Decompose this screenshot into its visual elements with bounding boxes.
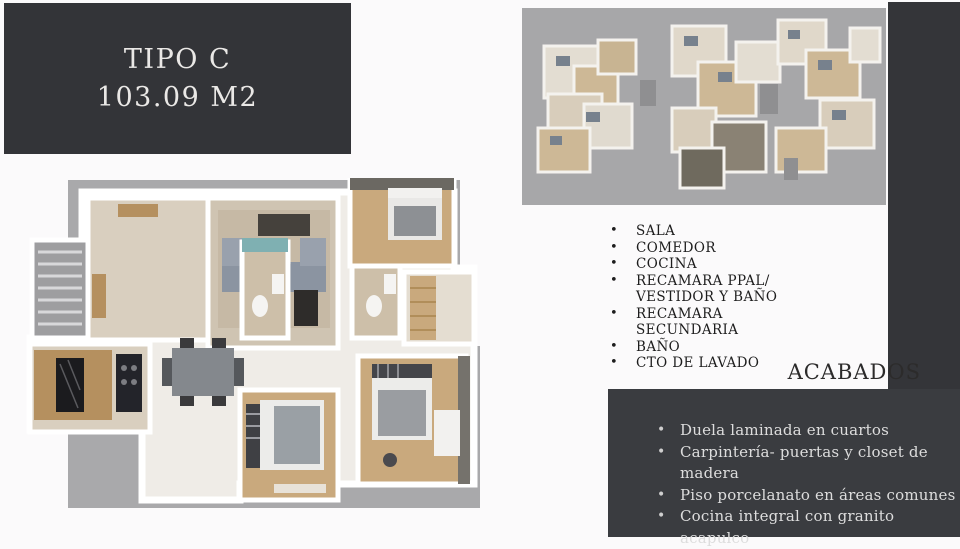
list-item: • RECAMARA PPAL/ VESTIDOR Y BAÑO bbox=[606, 273, 821, 306]
acabado-label: Carpintería- puertas y closet de madera bbox=[680, 442, 960, 485]
bullet-icon: • bbox=[653, 420, 680, 442]
entry-hall bbox=[88, 198, 208, 340]
list-item: • Carpintería- puertas y closet de mader… bbox=[653, 442, 960, 485]
unit-type-title-box: TIPO C 103.09 M2 bbox=[4, 3, 351, 154]
bathroom-main bbox=[242, 238, 288, 338]
list-item: • COCINA bbox=[606, 256, 821, 273]
bullet-icon: • bbox=[653, 485, 680, 507]
walk-in-closet bbox=[404, 272, 474, 344]
bullet-icon: • bbox=[653, 506, 680, 528]
stove bbox=[116, 354, 142, 412]
bullet-icon: • bbox=[606, 355, 636, 372]
room-label: COMEDOR bbox=[636, 240, 716, 257]
list-item: • Duela laminada en cuartos bbox=[653, 420, 960, 442]
room-label: RECAMARA SECUNDARIA bbox=[636, 306, 738, 339]
acabado-label: Piso porcelanato en áreas comunes bbox=[680, 485, 960, 507]
bullet-icon: • bbox=[606, 240, 636, 257]
acabado-label: Cocina integral con granito acapulco bbox=[680, 506, 960, 549]
building-aerial-render bbox=[522, 8, 886, 205]
list-item: • BAÑO bbox=[606, 339, 821, 356]
bullet-icon: • bbox=[606, 256, 636, 273]
acabados-heading: ACABADOS bbox=[700, 360, 921, 384]
rooms-list: • SALA • COMEDOR • COCINA • RECAMARA PPA… bbox=[606, 223, 821, 372]
bedroom-secondary bbox=[240, 390, 338, 500]
laundry-closet bbox=[294, 290, 318, 326]
dining-table bbox=[162, 338, 244, 406]
list-item: • COMEDOR bbox=[606, 240, 821, 257]
list-item: • SALA bbox=[606, 223, 821, 240]
list-item: • Cocina integral con granito acapulco bbox=[653, 506, 960, 549]
floor-plan-render bbox=[22, 178, 490, 510]
bed-principal bbox=[372, 364, 432, 440]
bullet-icon: • bbox=[606, 339, 636, 356]
unit-type-area: 103.09 M2 bbox=[97, 79, 258, 117]
list-item: • Piso porcelanato en áreas comunes bbox=[653, 485, 960, 507]
room-label: RECAMARA PPAL/ VESTIDOR Y BAÑO bbox=[636, 273, 777, 306]
bed-top bbox=[388, 188, 442, 240]
bed-secondary bbox=[246, 400, 324, 470]
bedroom-top bbox=[350, 178, 454, 266]
acabado-label: Duela laminada en cuartos bbox=[680, 420, 960, 442]
bullet-icon: • bbox=[653, 442, 680, 464]
unit-type-name: TIPO C bbox=[124, 41, 231, 79]
bullet-icon: • bbox=[606, 306, 636, 323]
room-label: BAÑO bbox=[636, 339, 680, 356]
kitchen bbox=[30, 344, 150, 432]
bedroom-principal bbox=[358, 356, 470, 484]
room-label: COCINA bbox=[636, 256, 697, 273]
staircase bbox=[32, 240, 90, 338]
list-item: • RECAMARA SECUNDARIA bbox=[606, 306, 821, 339]
bullet-icon: • bbox=[606, 223, 636, 240]
bullet-icon: • bbox=[606, 273, 636, 290]
tv-console bbox=[258, 214, 310, 236]
room-label: SALA bbox=[636, 223, 675, 240]
acabados-panel: • Duela laminada en cuartos • Carpinterí… bbox=[608, 389, 960, 537]
